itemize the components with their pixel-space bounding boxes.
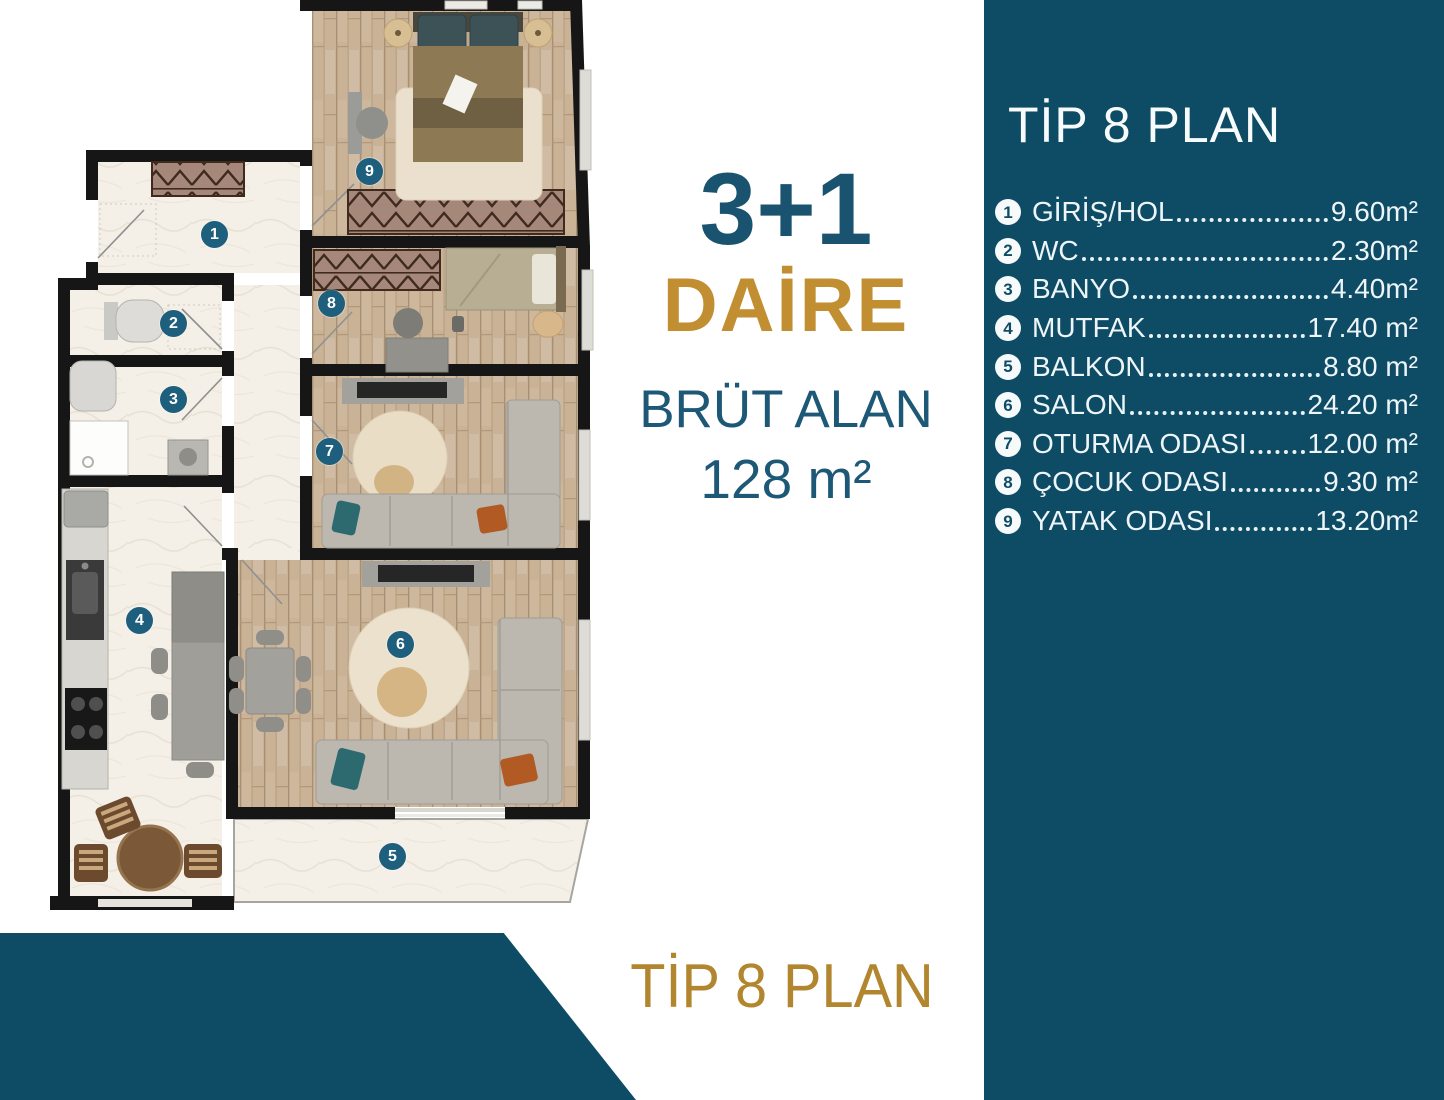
sidebar-title: TİP 8 PLAN <box>1008 96 1281 154</box>
legend-number-badge: 3 <box>995 276 1021 302</box>
pillow <box>470 15 518 51</box>
legend-room-label: ÇOCUK ODASI <box>1032 466 1228 498</box>
legend-area-value: 24.20 m² <box>1308 389 1419 421</box>
page: 1 2 3 4 5 6 7 8 9 3+1 DAİRE BRÜT ALAN 12… <box>0 0 1444 1100</box>
chair <box>186 762 214 778</box>
dining-chair <box>296 656 311 682</box>
tv <box>357 382 447 398</box>
toilet <box>116 300 164 342</box>
legend-number-badge: 5 <box>995 354 1021 380</box>
vanity-sink <box>70 361 116 411</box>
legend-row: 2 WC 2.30m² <box>995 232 1418 271</box>
kitchen-table <box>172 642 224 760</box>
legend-room-label: SALON <box>1032 389 1127 421</box>
stove <box>65 688 107 750</box>
legend-room-label: GİRİŞ/HOL <box>1032 196 1174 228</box>
hall-wardrobe <box>152 162 244 196</box>
plan-room-badge: 2 <box>160 310 187 337</box>
legend-area-value: 2.30m² <box>1331 235 1418 267</box>
floor-plan: 1 2 3 4 5 6 7 8 9 <box>0 0 660 940</box>
dotted-leader <box>1082 257 1328 261</box>
wood-chair <box>74 844 108 882</box>
legend-room-label: OTURMA ODASI <box>1032 428 1247 460</box>
dotted-leader <box>1149 373 1320 377</box>
desk-chair <box>393 308 423 338</box>
dotted-leader <box>1149 334 1305 338</box>
pouf <box>533 311 563 337</box>
legend-number-badge: 2 <box>995 238 1021 264</box>
kitchen-island <box>172 572 224 642</box>
legend-number-badge: 7 <box>995 431 1021 457</box>
dining-chair <box>296 688 311 714</box>
plan-room-badge: 4 <box>126 607 153 634</box>
gross-area-value: 128 m² <box>628 452 944 507</box>
legend-area-value: 9.60m² <box>1331 196 1418 228</box>
legend-room-label: BANYO <box>1032 273 1130 305</box>
legend-number-badge: 1 <box>995 199 1021 225</box>
apartment-type: 3+1 <box>628 158 944 260</box>
dining-chair <box>256 630 284 645</box>
legend-row: 9 YATAK ODASI 13.20m² <box>995 502 1418 541</box>
sittingroom-furniture <box>322 378 560 548</box>
floor-balcony <box>234 819 588 902</box>
dining-table <box>246 648 294 714</box>
legend-room-label: BALKON <box>1032 351 1146 383</box>
legend-area-value: 17.40 m² <box>1308 312 1419 344</box>
dotted-leader <box>1133 295 1328 299</box>
dotted-leader <box>1177 218 1328 222</box>
wood-table <box>118 826 182 890</box>
legend-number-badge: 6 <box>995 392 1021 418</box>
dotted-leader <box>1215 527 1312 531</box>
plan-room-badge: 8 <box>318 290 345 317</box>
bottom-banner-title: TİP 8 PLAN <box>618 956 945 1018</box>
legend-area-value: 9.30 m² <box>1323 466 1418 498</box>
chair <box>151 694 168 720</box>
plan-room-badge: 3 <box>160 386 187 413</box>
legend-row: 6 SALON 24.20 m² <box>995 386 1418 425</box>
wood-chair <box>184 844 222 878</box>
legend-number-badge: 9 <box>995 508 1021 534</box>
pillow <box>418 15 466 51</box>
legend-room-label: MUTFAK <box>1032 312 1146 344</box>
bottom-banner-shape <box>0 933 636 1100</box>
dotted-leader <box>1250 450 1305 454</box>
plan-room-badge: 6 <box>387 631 414 658</box>
fridge <box>64 491 108 527</box>
legend-row: 3 BANYO 4.40m² <box>995 270 1418 309</box>
room-legend: 1 GİRİŞ/HOL 9.60m² 2 WC 2.30m² 3 BANYO 4… <box>995 193 1418 540</box>
legend-row: 4 MUTFAK 17.40 m² <box>995 309 1418 348</box>
plan-room-badge: 1 <box>201 221 228 248</box>
plan-room-badge: 7 <box>316 438 343 465</box>
plan-room-badge: 5 <box>379 843 406 870</box>
legend-sidebar: TİP 8 PLAN 1 GİRİŞ/HOL 9.60m² 2 WC 2.30m… <box>984 0 1444 1100</box>
chair <box>356 107 388 139</box>
legend-number-badge: 4 <box>995 315 1021 341</box>
legend-area-value: 13.20m² <box>1315 505 1418 537</box>
shower-tray <box>70 421 128 475</box>
plan-room-badge: 9 <box>356 158 383 185</box>
legend-row: 7 OTURMA ODASI 12.00 m² <box>995 425 1418 464</box>
legend-room-label: YATAK ODASI <box>1032 505 1212 537</box>
legend-row: 5 BALKON 8.80 m² <box>995 347 1418 386</box>
dining-chair <box>229 656 244 682</box>
desk <box>386 338 448 372</box>
legend-number-badge: 8 <box>995 469 1021 495</box>
dining-chair <box>229 688 244 714</box>
dotted-leader <box>1231 488 1320 492</box>
floor-corridor <box>234 285 300 560</box>
legend-row: 1 GİRİŞ/HOL 9.60m² <box>995 193 1418 232</box>
legend-area-value: 12.00 m² <box>1308 428 1419 460</box>
dining-chair <box>256 717 284 732</box>
chair <box>151 648 168 674</box>
floor-plan-drawing <box>0 0 660 940</box>
legend-area-value: 8.80 m² <box>1323 351 1418 383</box>
pillow <box>532 254 556 304</box>
legend-room-label: WC <box>1032 235 1079 267</box>
cushion <box>476 504 508 534</box>
tv <box>378 565 474 582</box>
apartment-unit-label: DAİRE <box>628 268 944 344</box>
sofa <box>322 494 560 548</box>
childroom-wardrobe <box>314 250 440 290</box>
legend-area-value: 4.40m² <box>1331 273 1418 305</box>
gross-area-label: BRÜT ALAN <box>628 383 944 436</box>
legend-row: 8 ÇOCUK ODASI 9.30 m² <box>995 463 1418 502</box>
dotted-leader <box>1130 411 1305 415</box>
bed-headboard <box>556 246 566 312</box>
